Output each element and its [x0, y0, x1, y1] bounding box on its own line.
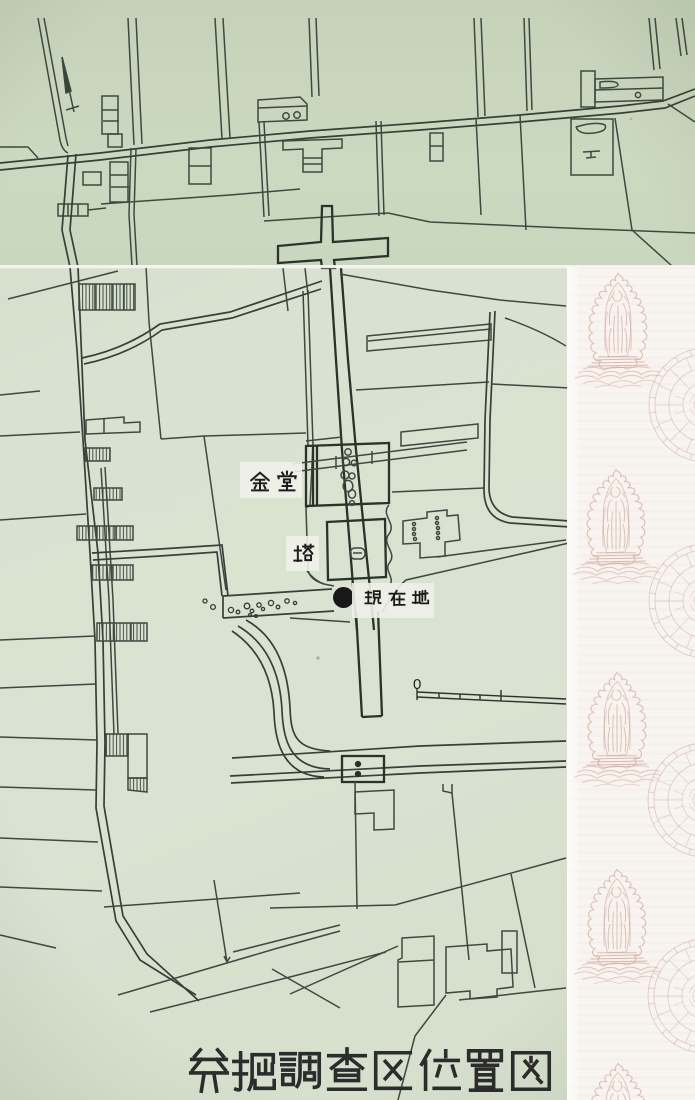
svg-text:0: 0: [413, 676, 421, 693]
